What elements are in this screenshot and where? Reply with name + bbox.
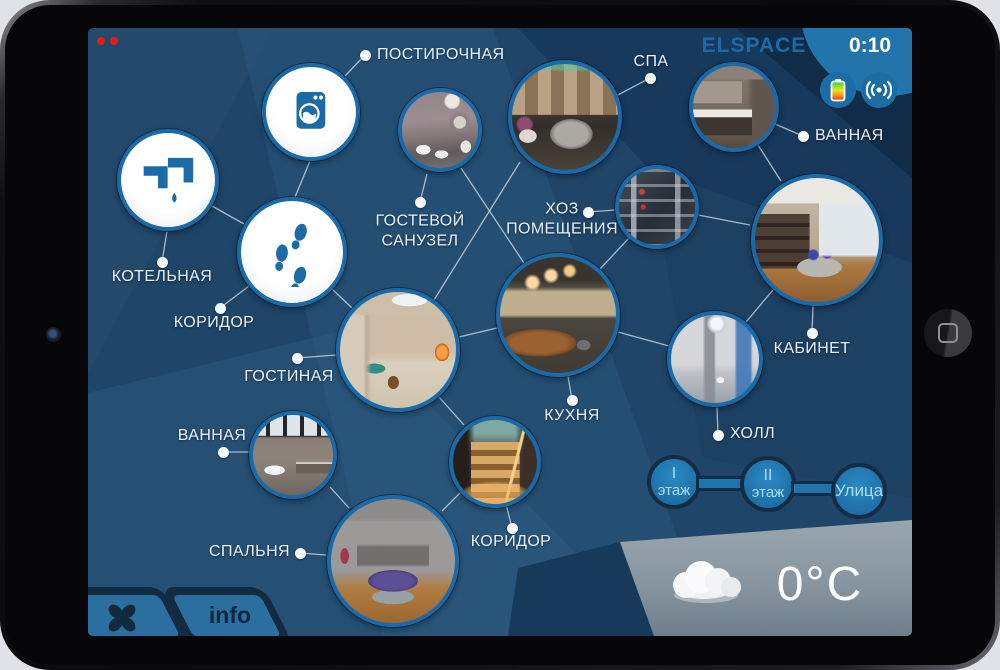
tablet-bezel: ELSPACE 0:10 [5,5,995,665]
front-camera [46,327,61,342]
app-screen: ELSPACE 0:10 [88,28,912,636]
home-button-glyph [938,323,958,343]
floor-button-label: II [764,467,773,484]
floor-button-label: Улица [835,482,883,500]
floor-button-label: этаж [752,485,784,501]
info-button-label: info [180,602,280,629]
fan-icon [104,600,140,636]
floor-button-floor-2[interactable]: IIэтаж [740,456,796,512]
floor-selector: IэтажIIэтажУлица [88,28,912,636]
floor-button-floor-1[interactable]: Iэтаж [647,455,701,509]
home-button[interactable] [924,309,972,357]
temperature-text: 0°C [750,556,890,614]
screenshot-root: ELSPACE 0:10 [0,0,1000,670]
floor-button-street[interactable]: Улица [831,463,887,519]
floor-button-label: I [672,465,676,482]
tablet-device: ELSPACE 0:10 [0,0,1000,670]
floor-button-label: этаж [658,483,690,499]
